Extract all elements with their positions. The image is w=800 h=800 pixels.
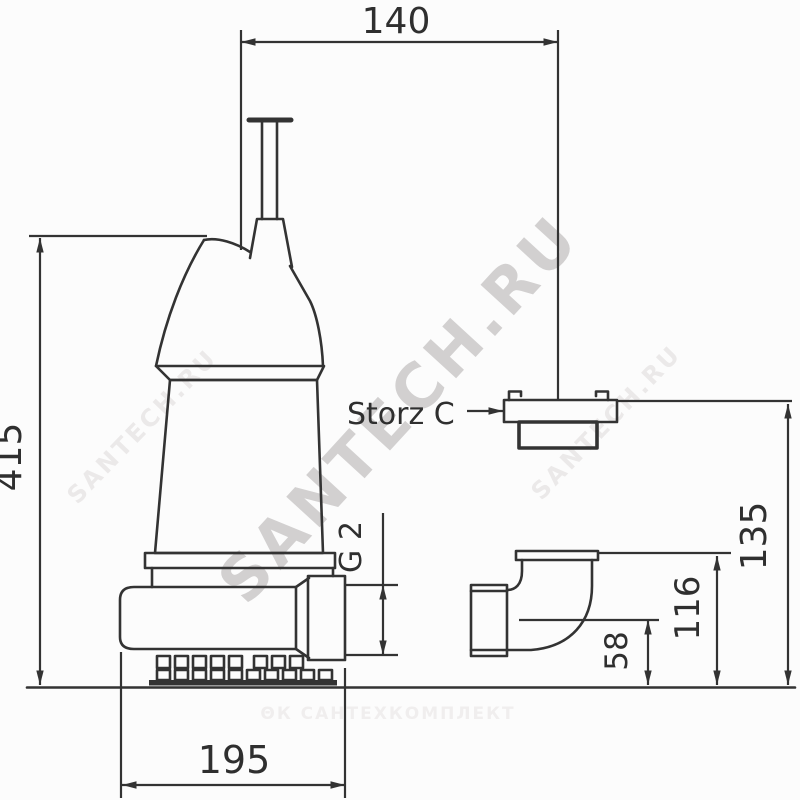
watermark-footer: ΘК САНТЕХКОМПЛЕКТ [260, 704, 515, 724]
elbow-socket [471, 585, 507, 656]
dimension-label-58: 58 [599, 631, 635, 670]
motor-dome-left [156, 240, 204, 366]
elbow-inner-wall [507, 560, 522, 590]
watermark-diagonal-faint-left: SANTECH.RU [61, 344, 223, 510]
discharge-port [308, 576, 345, 660]
dimension-label-g2: G 2 [334, 521, 369, 573]
motor-dome-right [290, 266, 323, 366]
dimension-label-140: 140 [362, 1, 431, 42]
storz-coupling [504, 392, 792, 449]
dimension-label-195: 195 [198, 738, 271, 782]
elbow-flange [516, 551, 598, 560]
dimension-label-135: 135 [734, 502, 775, 571]
elbow-outer-wall [507, 560, 592, 650]
watermarks: SANTECH.RU SANTECH.RU SANTECH.RU ΘК САНТ… [61, 201, 687, 724]
dimensions: 140 415 195 G 2 58 116 135 Storz C [0, 1, 788, 798]
motor-dome-top [204, 239, 250, 252]
base-plate [149, 680, 337, 686]
coupling-callout-label: Storz C [347, 397, 455, 432]
cable-gland [250, 219, 292, 267]
drawing-canvas: SANTECH.RU SANTECH.RU SANTECH.RU ΘК САНТ… [0, 0, 800, 800]
pump-dimension-drawing: SANTECH.RU SANTECH.RU SANTECH.RU ΘК САНТ… [0, 0, 800, 800]
dimension-label-415: 415 [0, 423, 30, 492]
dimension-label-116: 116 [668, 576, 708, 641]
